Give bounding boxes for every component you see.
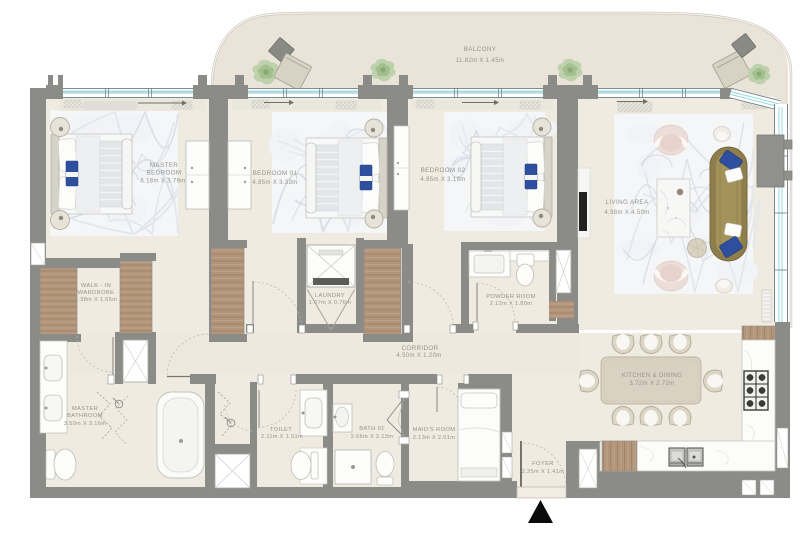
svg-text:FOYER: FOYER	[532, 461, 554, 467]
svg-text:6.18m X 3.79m: 6.18m X 3.79m	[140, 179, 185, 185]
svg-text:WALK - IN: WALK - IN	[81, 283, 111, 289]
svg-text:POWDER ROOM: POWDER ROOM	[486, 294, 536, 300]
svg-text:TOILET: TOILET	[270, 427, 292, 433]
svg-text:LAUNDRY: LAUNDRY	[315, 293, 345, 299]
svg-text:4.85m X 3.19m: 4.85m X 3.19m	[420, 177, 465, 183]
svg-text:MASTER: MASTER	[150, 162, 178, 169]
svg-text:BATH 01: BATH 01	[359, 426, 385, 432]
svg-text:CORRIDOR: CORRIDOR	[401, 345, 438, 352]
svg-text:BEDROOM 02: BEDROOM 02	[421, 167, 466, 174]
svg-text:11.82m X 1.45m: 11.82m X 1.45m	[456, 58, 504, 64]
svg-text:4.85m X 3.33m: 4.85m X 3.33m	[252, 180, 297, 186]
svg-text:BEDROOM: BEDROOM	[147, 170, 182, 177]
svg-text:3.72m X 2.72m: 3.72m X 2.72m	[629, 381, 674, 387]
svg-text:2.66m X 2.13m: 2.66m X 2.13m	[351, 434, 393, 440]
svg-text:KITCHEN & DINING: KITCHEN & DINING	[622, 373, 682, 379]
svg-text:MASTER: MASTER	[72, 406, 98, 412]
svg-text:WARDROBE: WARDROBE	[78, 290, 115, 296]
svg-text:BALCONY: BALCONY	[464, 46, 497, 53]
svg-text:2.12m X 1.80m: 2.12m X 1.80m	[490, 301, 532, 307]
svg-text:BATHROOM: BATHROOM	[67, 413, 103, 419]
svg-text:2.38m X 1.65m: 2.38m X 1.65m	[75, 297, 117, 303]
svg-text:2.11m X 1.51m: 2.11m X 1.51m	[261, 434, 303, 440]
svg-text:4.98m X 4.50m: 4.98m X 4.50m	[604, 210, 649, 216]
svg-text:3.50m X 3.16m: 3.50m X 3.16m	[64, 421, 106, 427]
svg-text:BEDROOM 01: BEDROOM 01	[253, 170, 298, 177]
svg-text:LIVING AREA: LIVING AREA	[605, 199, 648, 206]
svg-text:2.25m X 1.41m: 2.25m X 1.41m	[522, 469, 564, 475]
svg-text:4.50m X 1.20m: 4.50m X 1.20m	[396, 353, 441, 359]
svg-text:MAID'S ROOM: MAID'S ROOM	[413, 427, 456, 433]
svg-text:2.13m X 2.01m: 2.13m X 2.01m	[413, 435, 455, 441]
